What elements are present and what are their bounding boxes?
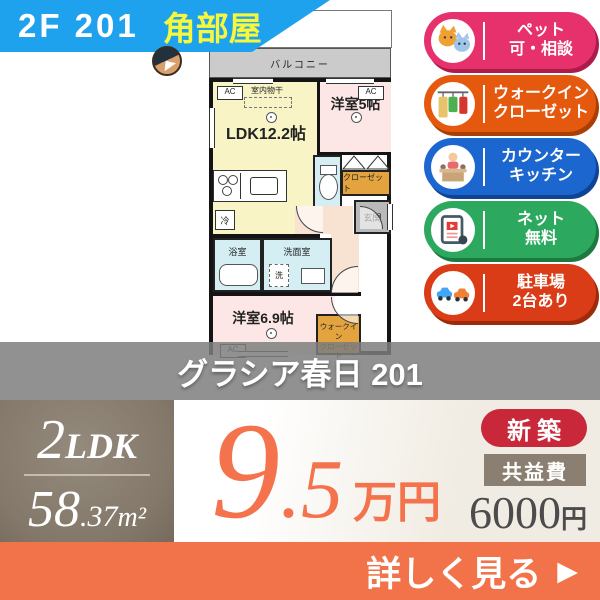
badge-disc — [431, 82, 475, 126]
floor-plan: バルコニー クローゼット 玄関 — [208, 8, 394, 362]
spec-divider — [24, 474, 150, 476]
badge-line1: ウォークイン — [492, 85, 590, 103]
window — [209, 108, 215, 148]
property-listing-card: バルコニー クローゼット 玄関 — [0, 0, 600, 600]
folding-door-icon — [341, 155, 391, 170]
badge-separator — [483, 211, 485, 249]
new-construction-badge: 新築 — [481, 409, 587, 447]
closet-icon — [435, 86, 471, 122]
badge-free-internet: ネット 無料 — [424, 201, 596, 258]
kitchen-icon — [435, 149, 471, 185]
fridge-space: 冷 — [215, 210, 235, 230]
floor-room-label: 2F 201 — [18, 7, 139, 45]
common-fee-label: 共益費 — [484, 454, 586, 486]
badge-separator — [483, 274, 485, 312]
area-unit: m² — [117, 502, 146, 533]
cta-label[interactable]: 詳しく見る — [366, 546, 541, 597]
balcony-label: バルコニー — [270, 56, 330, 71]
badge-line1: 駐車場 — [492, 274, 590, 292]
washroom-label: 洗面室 — [264, 245, 330, 258]
indoor-drying-label: 室内物干 — [242, 85, 292, 96]
cta-arrow-icon[interactable]: ▶ — [557, 556, 578, 587]
drying-rail-icon — [244, 97, 292, 108]
wic-label-1: ウォークイン — [318, 322, 359, 342]
bathtub-icon — [219, 264, 258, 286]
bath-label: 浴室 — [215, 245, 260, 258]
badge-disc — [431, 19, 475, 63]
room-bath: 浴室 — [213, 238, 262, 292]
ldk-label: LDK12.2帖 — [213, 120, 319, 144]
area-int: 58 — [28, 481, 80, 538]
balcony-area: バルコニー — [209, 48, 391, 78]
badge-line2: 無料 — [492, 230, 590, 248]
window — [233, 78, 273, 84]
rent-unit: 万円 — [353, 466, 441, 530]
property-name: グラシア春日 201 — [177, 349, 423, 394]
common-fee-value: 6000 円 — [462, 486, 594, 540]
badge-line2: 可・相談 — [492, 41, 590, 59]
internet-icon — [435, 212, 471, 248]
details-cta-bar[interactable]: 詳しく見る ▶ — [0, 542, 600, 600]
layout-number: 2 — [37, 409, 65, 471]
badge-line2: 2台あり — [492, 293, 590, 311]
badge-separator — [483, 22, 485, 60]
rent-dec: .5 — [280, 448, 343, 532]
layout-letters: LDK — [65, 426, 137, 466]
ac-box-ldk: AC — [217, 86, 243, 100]
toilet-bowl-icon — [319, 174, 338, 200]
corner-room-label: 角部屋 — [163, 2, 262, 50]
badge-separator — [483, 85, 485, 123]
cars-icon — [435, 275, 471, 311]
fee-unit: 円 — [561, 499, 587, 536]
window — [326, 78, 374, 84]
badge-line1: カウンター — [492, 148, 590, 166]
badge-disc — [431, 271, 475, 315]
washer-space: 洗 — [269, 264, 289, 287]
badge-separator — [483, 148, 485, 186]
ac-box-bedroom5: AC — [358, 86, 384, 100]
badge-line1: ペット — [492, 22, 590, 40]
badge-walkin-closet: ウォークイン クローゼット — [424, 75, 596, 132]
light-fixture-icon — [266, 112, 277, 123]
badge-disc — [431, 208, 475, 252]
badge-line2: クローゼット — [492, 104, 590, 122]
closet-label: クローゼット — [343, 172, 389, 194]
room-closet: クローゼット — [341, 170, 391, 196]
property-name-band: グラシア春日 201 — [0, 342, 600, 400]
room-washroom: 洗面室 洗 — [262, 238, 332, 292]
badge-parking: 駐車場 2台あり — [424, 264, 596, 321]
badge-line1: ネット — [492, 211, 590, 229]
entrance-door-opening — [387, 204, 393, 230]
rent-price: 9 .5 万円 — [182, 402, 470, 540]
washer-label: 洗 — [275, 270, 283, 281]
fridge-label: 冷 — [220, 214, 229, 227]
sink-icon — [250, 177, 278, 195]
area-dec: .37 — [80, 500, 118, 533]
fee-amount: 6000 — [469, 486, 561, 539]
unit-spec-box: 2LDK 58.37m² — [0, 400, 174, 542]
light-fixture-icon — [351, 112, 362, 123]
compass-icon — [152, 46, 182, 76]
vanity-sink-icon — [301, 268, 325, 284]
bedroom69-label: 洋室6.9帖 — [213, 308, 313, 328]
pets-icon — [435, 23, 471, 59]
rent-int: 9 — [211, 402, 280, 540]
badge-line2: キッチン — [492, 167, 590, 185]
light-fixture-icon — [266, 328, 277, 339]
kitchen-counter — [213, 170, 287, 202]
room-toilet — [313, 155, 342, 212]
badge-disc — [431, 145, 475, 189]
badge-pets-allowed: ペット 可・相談 — [424, 12, 596, 69]
badge-counter-kitchen: カウンター キッチン — [424, 138, 596, 195]
stove-icon — [216, 173, 241, 199]
